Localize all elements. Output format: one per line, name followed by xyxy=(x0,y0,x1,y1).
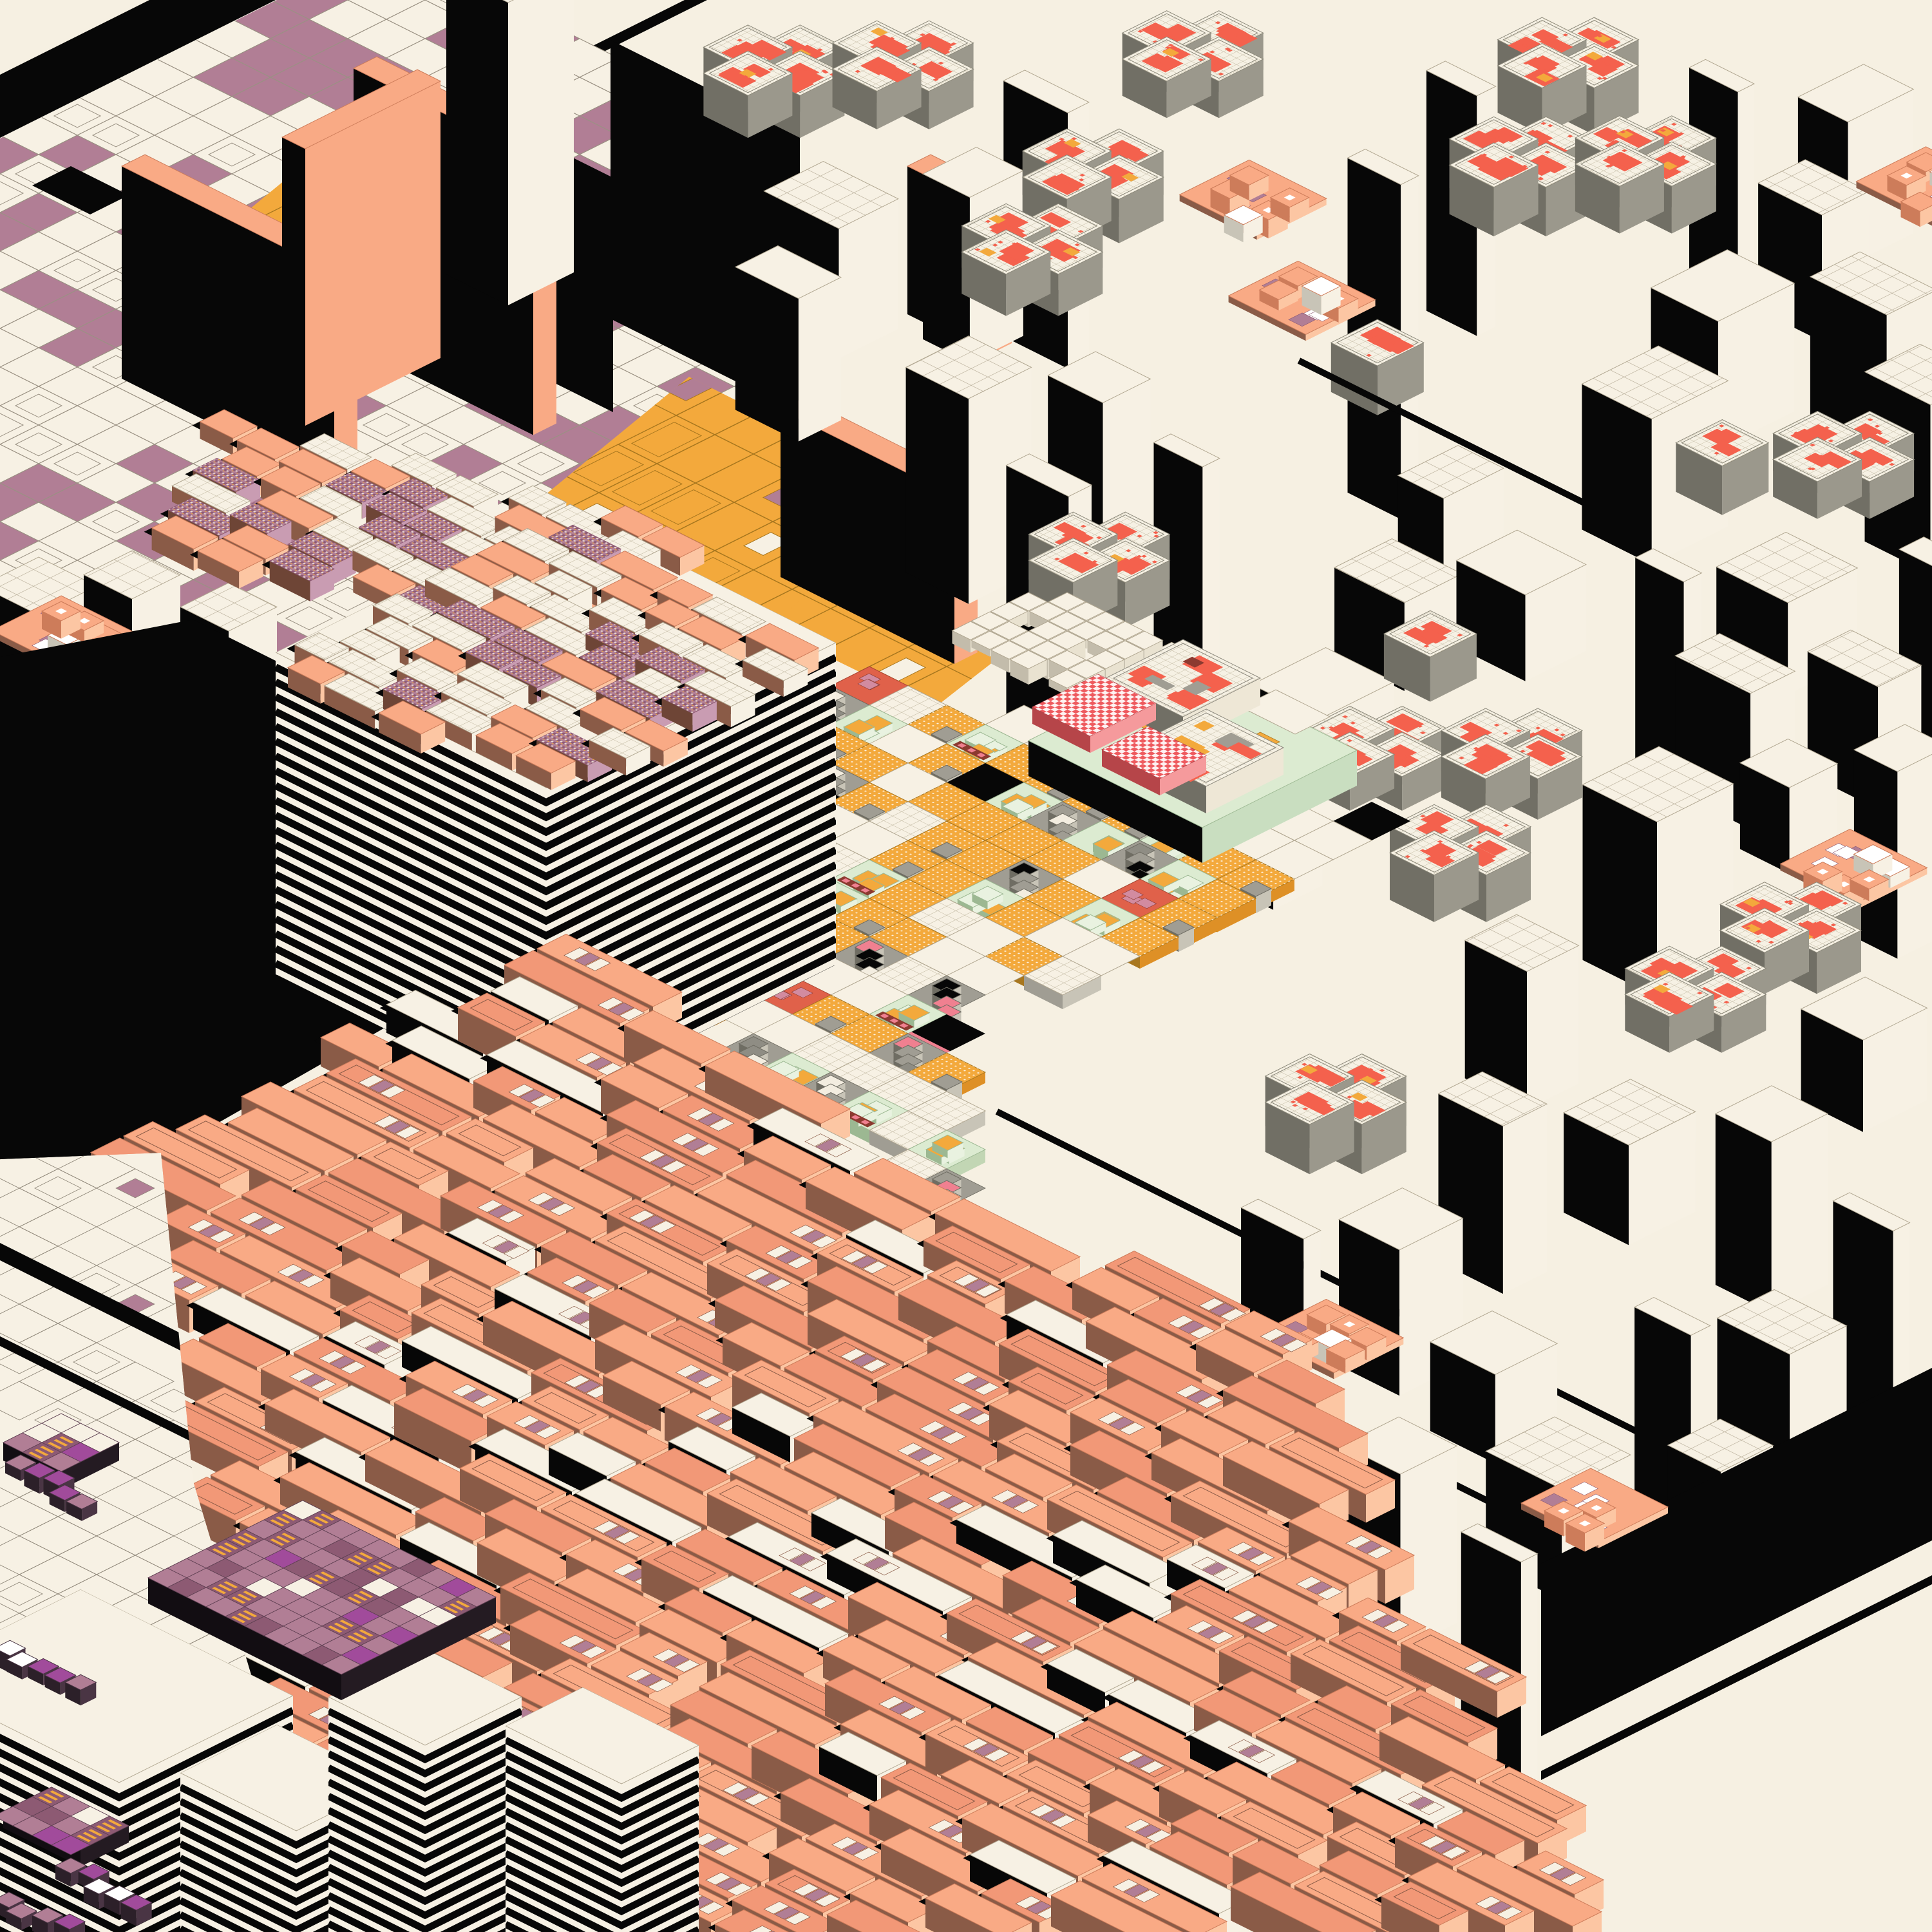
isometric-scene-canvas xyxy=(0,0,1932,1932)
generative-isometric-artwork xyxy=(0,0,1932,1932)
